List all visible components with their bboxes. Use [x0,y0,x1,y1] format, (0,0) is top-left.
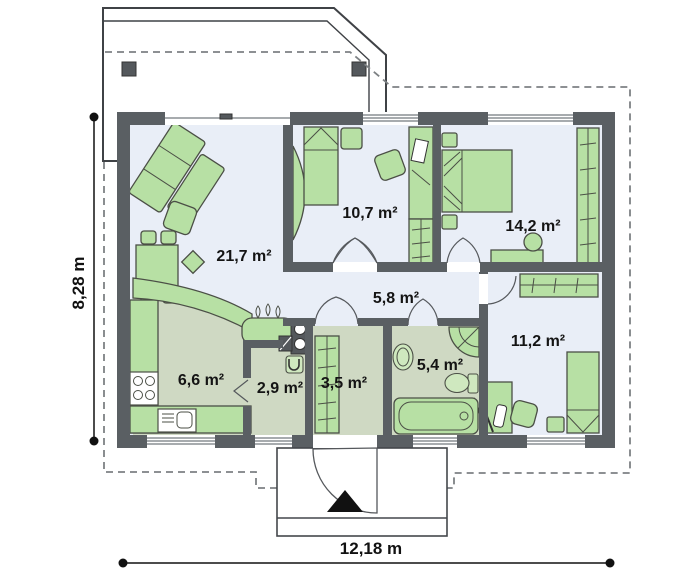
chair [524,233,542,251]
dimension-width: 12,18 m [119,539,615,568]
nightstand [341,128,362,149]
terrace-columns [122,62,366,76]
washbasin-icon [393,344,413,370]
stove-icon [130,372,158,405]
room-label-corridor: 3,5 m² [321,375,367,392]
window [363,112,418,125]
room-label-bedroom2: 14,2 m² [505,218,560,235]
kitchen-sink-icon [158,409,196,432]
chair [161,231,176,244]
bathtub-icon [394,398,478,434]
room-label-living: 21,7 m² [216,248,271,265]
window [255,435,292,448]
window [147,435,215,448]
nightstand [547,417,564,432]
column-icon [352,62,366,76]
room-label-hall: 5,8 m² [373,290,419,307]
floor-plan-canvas: 21,7 m² 10,7 m² 14,2 m² 5,8 m² 11,2 m² 6… [0,0,700,575]
column-icon [122,62,136,76]
dimension-height-label: 8,28 m [69,257,88,310]
wardrobe [409,219,433,268]
wardrobe [577,128,599,268]
chair [141,231,156,244]
desk [409,127,433,219]
bed-single [567,352,599,433]
nightstand [442,215,457,229]
toilet-icon [445,374,478,394]
room-label-kitchen: 6,6 m² [178,372,224,389]
room-label-bedroom3: 11,2 m² [511,333,565,350]
bed-single [304,127,338,205]
floor-plan: 21,7 m² 10,7 m² 14,2 m² 5,8 m² 11,2 m² 6… [0,0,700,575]
room-label-utility: 2,9 m² [257,380,303,397]
window [488,112,573,125]
dimension-height: 8,28 m [69,113,99,446]
dimension-width-label: 12,18 m [340,539,402,558]
window [413,435,457,448]
bed-double [442,150,512,212]
wardrobe [520,274,598,297]
terrace-sliding-door [165,112,290,125]
nightstand [442,133,457,147]
room-label-bathroom: 5,4 m² [417,357,463,374]
room-label-bedroom1: 10,7 m² [342,205,397,222]
window [527,435,585,448]
utility-sink-icon [286,356,303,373]
